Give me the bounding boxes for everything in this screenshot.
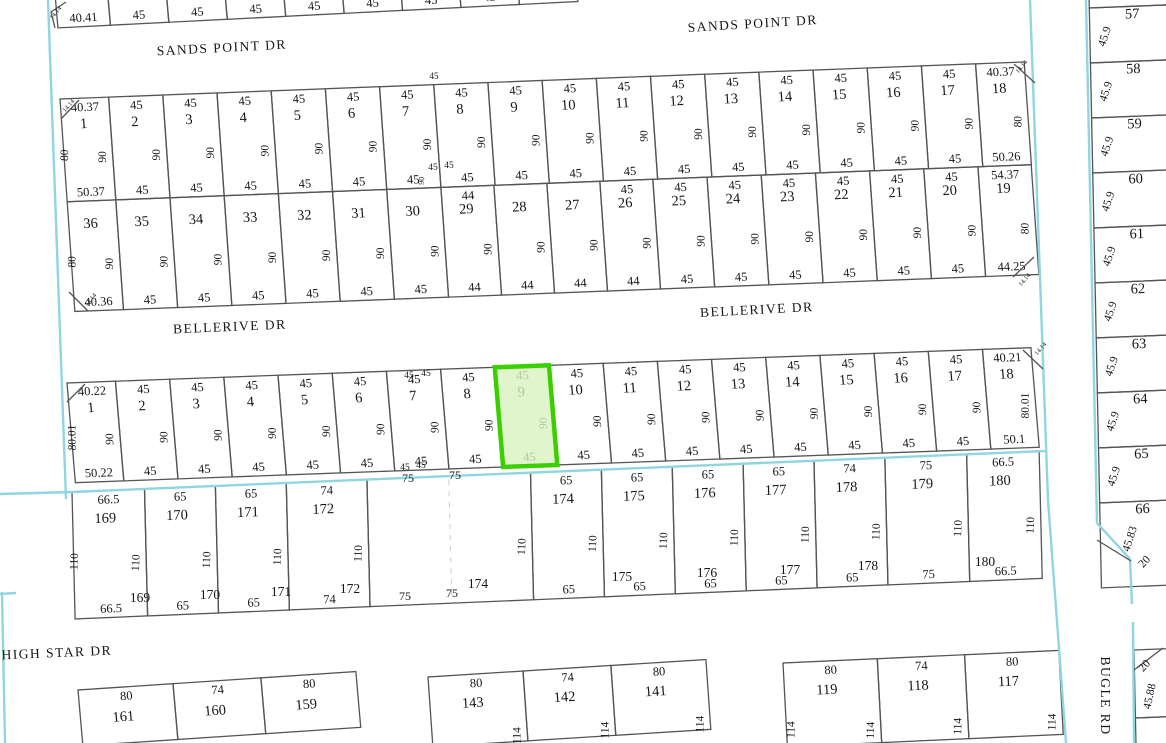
dim-label: 44 <box>468 280 482 294</box>
dim-label: 174 <box>468 576 489 591</box>
lot-number-label: 22 <box>834 187 850 204</box>
lot-number-label: 8 <box>456 102 464 118</box>
lot-number-label: 25 <box>671 193 687 210</box>
lot-number-label: 24 <box>725 191 741 208</box>
dim-label: 45 <box>360 456 374 470</box>
dim-label: 45 <box>455 85 468 99</box>
dim-label: 45 <box>570 366 584 380</box>
dim-label: 178 <box>858 558 879 573</box>
dim-label: 172 <box>340 581 360 596</box>
dim-label: 90 <box>750 233 762 245</box>
lot-number-label: 119 <box>816 682 838 699</box>
lot-number-label: 17 <box>940 83 956 100</box>
lot-number-label: 29 <box>459 201 475 218</box>
dim-label: 110 <box>68 553 81 570</box>
dim-label: 75 <box>446 586 458 600</box>
dim-label: 90 <box>695 235 707 247</box>
dim-label: 80 <box>59 149 71 161</box>
dim-label: 65 <box>562 582 575 597</box>
dim-label: 110 <box>516 538 529 555</box>
lot-number-label: 172 <box>312 501 334 518</box>
dim-label: 45 <box>739 442 753 456</box>
dim-label: 45 <box>444 161 454 171</box>
dim-label: 90 <box>964 117 976 129</box>
dim-label: 175 <box>612 569 633 584</box>
dim-label: 45 <box>948 151 961 165</box>
selected-parcel-highlight[interactable] <box>495 365 558 467</box>
dim-label: 90 <box>267 427 279 439</box>
dim-label: 45 <box>299 376 313 390</box>
lot-number-label: 1 <box>87 400 96 416</box>
dim-label: 90 <box>535 241 547 253</box>
dim-label: 45 <box>306 458 320 472</box>
dim-label: 45 <box>678 362 692 376</box>
dim-label: 45 <box>794 440 808 454</box>
dim-label: 45 <box>617 79 630 93</box>
dim-label: 40.22 <box>77 384 106 399</box>
lot-number-label: 175 <box>623 488 645 505</box>
dim-label: 45 <box>404 371 414 381</box>
dim-label: 65 <box>631 470 644 485</box>
lot-number-label: 62 <box>1131 281 1146 298</box>
dim-label: 90 <box>639 130 651 142</box>
dim-label: 80 <box>652 664 665 679</box>
dim-label: 45 <box>292 92 305 106</box>
lot-number-label: 3 <box>192 396 201 412</box>
dim-label: 90 <box>417 176 427 185</box>
lot-number-label: 30 <box>405 203 421 220</box>
lot-number-label: 160 <box>204 702 227 719</box>
dim-label: 45 <box>734 270 747 284</box>
dim-label: 45 <box>897 263 910 277</box>
dim-label: 90 <box>205 147 217 159</box>
dim-label: 44 <box>521 278 535 292</box>
lot-number-label: 15 <box>831 87 847 104</box>
lot-number-label: 10 <box>560 97 576 114</box>
dim-label: 90 <box>158 431 170 443</box>
dim-label: 66.5 <box>992 455 1014 470</box>
dim-label: 65 <box>176 598 189 613</box>
lot-number-label: 174 <box>552 491 575 508</box>
lot-number-label: 2 <box>138 398 147 414</box>
dim-label: 90 <box>158 255 170 267</box>
dim-label: 45 <box>671 77 684 91</box>
dim-label: 45 <box>956 434 970 448</box>
lot-number-label: 14 <box>777 89 793 106</box>
dim-label: 90 <box>646 413 658 425</box>
dim-label: 44.25 <box>997 259 1026 274</box>
dim-label: 45 <box>951 261 964 275</box>
lot-number-label: 178 <box>835 479 857 496</box>
dim-label: 110 <box>658 532 671 549</box>
dim-label: 75 <box>402 471 414 485</box>
dim-label: 66.5 <box>995 563 1017 578</box>
plat-map-canvas[interactable]: 40.41454545454545454540.37150.3790452459… <box>0 0 1166 743</box>
dim-label: 45 <box>238 94 251 108</box>
lot-number-label: 57 <box>1125 6 1140 23</box>
dim-label: 90 <box>971 401 983 413</box>
dim-label: 45 <box>902 436 916 450</box>
dim-label: 45 <box>624 364 638 378</box>
lot-number-label: 5 <box>300 392 309 408</box>
dim-label: 75 <box>922 567 935 582</box>
dim-label: 74 <box>323 592 337 607</box>
dim-label: 45 <box>360 284 373 298</box>
map-background <box>0 0 1166 743</box>
lot-number-label: 159 <box>295 696 318 713</box>
dim-label: 45 <box>680 272 693 286</box>
dim-label: 90 <box>700 411 712 423</box>
lot-number-label: 16 <box>886 85 902 102</box>
lot-number-label: 13 <box>730 376 746 392</box>
lot-number-label: 26 <box>617 195 633 212</box>
dim-label: 50.37 <box>76 184 105 199</box>
dim-label: 45 <box>366 0 380 10</box>
lot-number-label: 10 <box>568 382 584 398</box>
dim-label: 90 <box>693 128 705 140</box>
dim-label: 114 <box>952 718 964 735</box>
dim-label: 74 <box>915 658 929 673</box>
dim-label: 90 <box>259 144 271 156</box>
dim-label: 45 <box>677 162 690 176</box>
lot-number-label: 171 <box>237 504 259 521</box>
dim-label: 65 <box>701 467 714 482</box>
dim-label: 90 <box>588 239 600 251</box>
dim-label: 65 <box>772 464 785 479</box>
dim-label: 45 <box>732 160 745 174</box>
dim-label: 40.21 <box>993 350 1022 365</box>
lot-number-label: 142 <box>553 689 576 706</box>
lot-number-label: 141 <box>644 683 667 700</box>
dim-label: 45 <box>428 163 438 173</box>
dim-label: 45 <box>143 464 157 478</box>
dim-label: 110 <box>272 548 285 565</box>
dim-label: 40.37 <box>986 64 1015 79</box>
dim-label: 90 <box>368 140 380 152</box>
dim-label: 80.01 <box>1020 392 1032 418</box>
dim-label: 114 <box>599 721 611 738</box>
dim-label: 110 <box>587 535 600 552</box>
lot-number-label: 161 <box>112 708 135 725</box>
lot-number-label: 31 <box>351 205 367 222</box>
dim-label: 90 <box>314 142 326 154</box>
dim-label: 45 <box>252 288 265 302</box>
dim-label: 45 <box>569 166 582 180</box>
lot-number-label: 118 <box>907 677 929 694</box>
dim-label: 114 <box>865 721 877 738</box>
lot-number-label: 15 <box>839 372 855 388</box>
dim-label: 45 <box>307 0 321 13</box>
dim-label: 45 <box>841 356 855 370</box>
dim-label: 45 <box>577 448 591 462</box>
dim-label: 45 <box>191 380 205 394</box>
bugle-rd-east-boundary-south <box>1133 622 1134 743</box>
dim-label: 90 <box>910 120 922 132</box>
lot-number-label: 66 <box>1135 501 1150 518</box>
lot-number-label: 16 <box>893 370 909 386</box>
lot-number-label: 21 <box>888 185 904 202</box>
dim-label: 90 <box>804 231 816 243</box>
lot-number-label: 33 <box>242 209 258 226</box>
dim-label: 65 <box>633 579 646 594</box>
dim-label: 114 <box>512 727 524 743</box>
dim-label: 66.5 <box>97 492 119 507</box>
dim-label: 45 <box>252 460 266 474</box>
lot-number-label: 1 <box>80 116 88 132</box>
dim-label: 45 <box>414 282 427 296</box>
dim-label: 170 <box>200 587 221 602</box>
dim-label: 45 <box>353 374 367 388</box>
dim-label: 80 <box>66 256 78 268</box>
lot-number-label: 7 <box>402 104 410 120</box>
lot-number-label: 58 <box>1126 61 1141 78</box>
dim-label: 45 <box>190 5 204 20</box>
dim-label: 90 <box>809 407 821 419</box>
lot-number-label: 19 <box>996 181 1012 198</box>
dim-label: 65 <box>247 595 260 610</box>
dim-label: 80 <box>1006 654 1019 669</box>
dim-label: 45 <box>631 446 645 460</box>
dim-label: 65 <box>846 570 859 585</box>
lot-number-label: 14 <box>784 374 801 391</box>
dim-label: 74 <box>561 670 575 685</box>
dim-label: 110 <box>1025 516 1038 533</box>
dim-label: 90 <box>422 138 434 150</box>
lot-number-label: 3 <box>185 112 193 128</box>
dim-label: 45 <box>132 7 146 22</box>
dim-label: 45 <box>949 352 963 366</box>
dim-label: 45 <box>733 360 747 374</box>
dim-label: 45 <box>834 71 847 85</box>
dim-label: 45 <box>515 168 528 182</box>
dim-label: 45 <box>416 461 426 471</box>
dim-label: 74 <box>211 682 225 697</box>
dim-label: 65 <box>560 473 573 488</box>
dim-label: 45 <box>848 438 862 452</box>
dim-label: 44 <box>627 274 641 288</box>
lot-number-label: 23 <box>779 189 795 206</box>
lot-number-label: 11 <box>622 380 637 396</box>
lot-number-label: 18 <box>991 81 1007 98</box>
lot-number-label: 27 <box>564 197 580 214</box>
lot-number-label: 18 <box>999 366 1015 382</box>
dim-label: 110 <box>130 554 143 571</box>
dim-label: 110 <box>729 529 742 546</box>
dim-label: 180 <box>975 554 996 569</box>
dim-label: 90 <box>482 243 494 255</box>
dim-label: 50.26 <box>992 149 1021 164</box>
lot-number-label: 60 <box>1128 171 1143 188</box>
dim-label: 110 <box>799 526 812 543</box>
dim-label: 45 <box>197 462 211 476</box>
dim-label: 45 <box>249 2 263 17</box>
dim-label: 176 <box>697 565 718 580</box>
dim-label: 45 <box>563 81 576 95</box>
lot-number-label: 170 <box>166 507 188 524</box>
dim-label: 45 <box>421 369 431 379</box>
dim-label: 90 <box>151 149 163 161</box>
dim-label: 90 <box>213 253 225 265</box>
dim-label: 45 <box>462 370 476 384</box>
dim-label: 90 <box>104 258 116 270</box>
dim-label: 177 <box>780 562 801 577</box>
dim-label: 45 <box>130 98 143 112</box>
dim-label: 90 <box>530 134 542 146</box>
dim-label: 45 <box>352 174 365 188</box>
dim-label: 45 <box>786 158 799 172</box>
dim-label: 74 <box>320 483 334 498</box>
dim-label: 110 <box>201 551 214 568</box>
dim-label: 45 <box>184 96 197 110</box>
lot-number-label: 63 <box>1132 336 1147 353</box>
dim-label: 80 <box>302 676 316 691</box>
lot-number-label: 176 <box>694 485 716 502</box>
dim-label: 45 <box>468 452 482 466</box>
dim-label: 45 <box>306 286 319 300</box>
dim-label: 80 <box>824 663 837 678</box>
dim-label: 45 <box>843 265 856 279</box>
dim-label: 80 <box>469 676 482 691</box>
dim-label: 90 <box>476 136 488 148</box>
dim-label: 90 <box>966 224 978 236</box>
dim-label: 171 <box>271 584 291 599</box>
dim-label: 66.5 <box>100 601 122 616</box>
map-viewport: 40.41454545454545454540.37150.3790452459… <box>0 0 1166 743</box>
dim-label: 45 <box>787 358 801 372</box>
dim-label: 45 <box>401 87 414 101</box>
lot-number-label: 180 <box>989 473 1011 490</box>
dim-label: 90 <box>641 237 653 249</box>
lot-number-label: 6 <box>347 106 355 122</box>
dim-label: 90 <box>267 251 279 263</box>
dim-label: 45 <box>789 268 802 282</box>
dim-label: 90 <box>863 405 875 417</box>
lot-number-label: 11 <box>615 95 630 111</box>
dim-label: 45 <box>244 178 257 192</box>
lot-number-label: 169 <box>94 510 116 527</box>
dim-label: 90 <box>754 409 766 421</box>
dim-label: 90 <box>855 122 867 134</box>
dim-label: 90 <box>213 429 225 441</box>
dim-label: 45 <box>136 183 149 197</box>
lot-number-label: 65 <box>1134 446 1149 463</box>
lot-number-label: 20 <box>942 183 958 200</box>
lot-number-label: 28 <box>512 199 528 216</box>
lot-number-label: 7 <box>409 388 418 404</box>
dim-label: 45 <box>197 290 210 304</box>
lot-number-label: 12 <box>669 93 685 110</box>
dim-label: 80 <box>1012 116 1024 128</box>
dim-label: 45 <box>894 153 907 167</box>
lot-number-label: 2 <box>131 114 139 130</box>
lot-number-label: 35 <box>134 214 150 231</box>
dim-label: 74 <box>843 461 857 476</box>
dim-label: 90 <box>592 415 604 427</box>
dim-label: 114 <box>694 715 706 732</box>
dim-label: 90 <box>484 419 496 431</box>
dim-label: 45 <box>143 292 156 306</box>
dim-label: 44 <box>574 276 588 290</box>
dim-label: 90 <box>747 126 759 138</box>
dim-label: 90 <box>584 132 596 144</box>
dim-label: 45 <box>840 156 853 170</box>
dim-label: 45 <box>461 170 474 184</box>
dim-label: 50.1 <box>1003 432 1026 447</box>
dim-label: 45 <box>685 444 699 458</box>
dim-label: 45 <box>780 73 793 87</box>
dim-label: 110 <box>870 523 883 540</box>
dim-label: 45 <box>942 67 955 81</box>
dim-label: 45 <box>424 0 438 7</box>
lot-number-label: 143 <box>461 695 484 712</box>
dim-label: 90 <box>97 151 109 163</box>
dim-label: 45 <box>895 354 909 368</box>
lot-number-label: 12 <box>676 378 692 394</box>
lot-number-label: 59 <box>1127 116 1142 133</box>
dim-label: 50.22 <box>84 465 113 480</box>
dim-label: 80.01 <box>66 424 78 450</box>
dim-label: 169 <box>130 590 151 605</box>
dim-label: 110 <box>952 520 965 537</box>
dim-label: 45 <box>298 176 311 190</box>
dim-label: 45 <box>430 71 440 81</box>
lot-number-label: 8 <box>463 386 472 402</box>
dim-label: 90 <box>104 433 116 445</box>
dim-label: 90 <box>321 249 333 261</box>
lot-number-label: 17 <box>947 368 963 384</box>
dim-label: 45 <box>245 378 259 392</box>
dim-label: 90 <box>429 245 441 257</box>
dim-label: 65 <box>174 489 187 504</box>
dim-label: 65 <box>245 486 258 501</box>
dim-label: 90 <box>912 226 924 238</box>
dim-label: 90 <box>917 403 929 415</box>
dim-label: 45 <box>726 75 739 89</box>
lot-number-label: 5 <box>293 108 301 124</box>
dim-label: 45 <box>623 164 636 178</box>
dim-label: 75 <box>920 458 933 473</box>
dim-label: 45 <box>509 83 522 97</box>
lot-number-label: 32 <box>297 207 313 224</box>
dim-label: 80 <box>119 688 133 703</box>
dim-label: 90 <box>321 425 333 437</box>
dim-label: 75 <box>399 589 411 603</box>
dim-label: 80 <box>1020 222 1032 234</box>
dim-label: 90 <box>375 247 387 259</box>
lot-number-label: 36 <box>83 216 99 233</box>
dim-label: 114 <box>1046 713 1058 730</box>
dim-label: 45 <box>136 382 150 396</box>
dim-label: 40.41 <box>69 10 98 25</box>
lot-number-label: 117 <box>997 673 1019 690</box>
dim-label: 90 <box>801 124 813 136</box>
southwest-plat-stub <box>0 593 16 594</box>
dim-label: 45 <box>346 90 359 104</box>
dim-label: 90 <box>429 421 441 433</box>
lot-number-label: 13 <box>723 91 739 108</box>
lot-number-label: 6 <box>354 390 363 406</box>
dim-label: 45 <box>888 69 901 83</box>
dim-label: 75 <box>449 468 461 482</box>
lot-number-label: 9 <box>510 99 518 115</box>
lot-number-label: 177 <box>765 482 787 499</box>
dim-label: 110 <box>352 545 365 562</box>
dim-label: 90 <box>858 229 870 241</box>
lot-number-label: 179 <box>911 476 933 493</box>
dim-label: 45 <box>483 0 497 4</box>
lot-number-label: 34 <box>188 212 204 229</box>
lot-number-label: 64 <box>1133 391 1149 408</box>
